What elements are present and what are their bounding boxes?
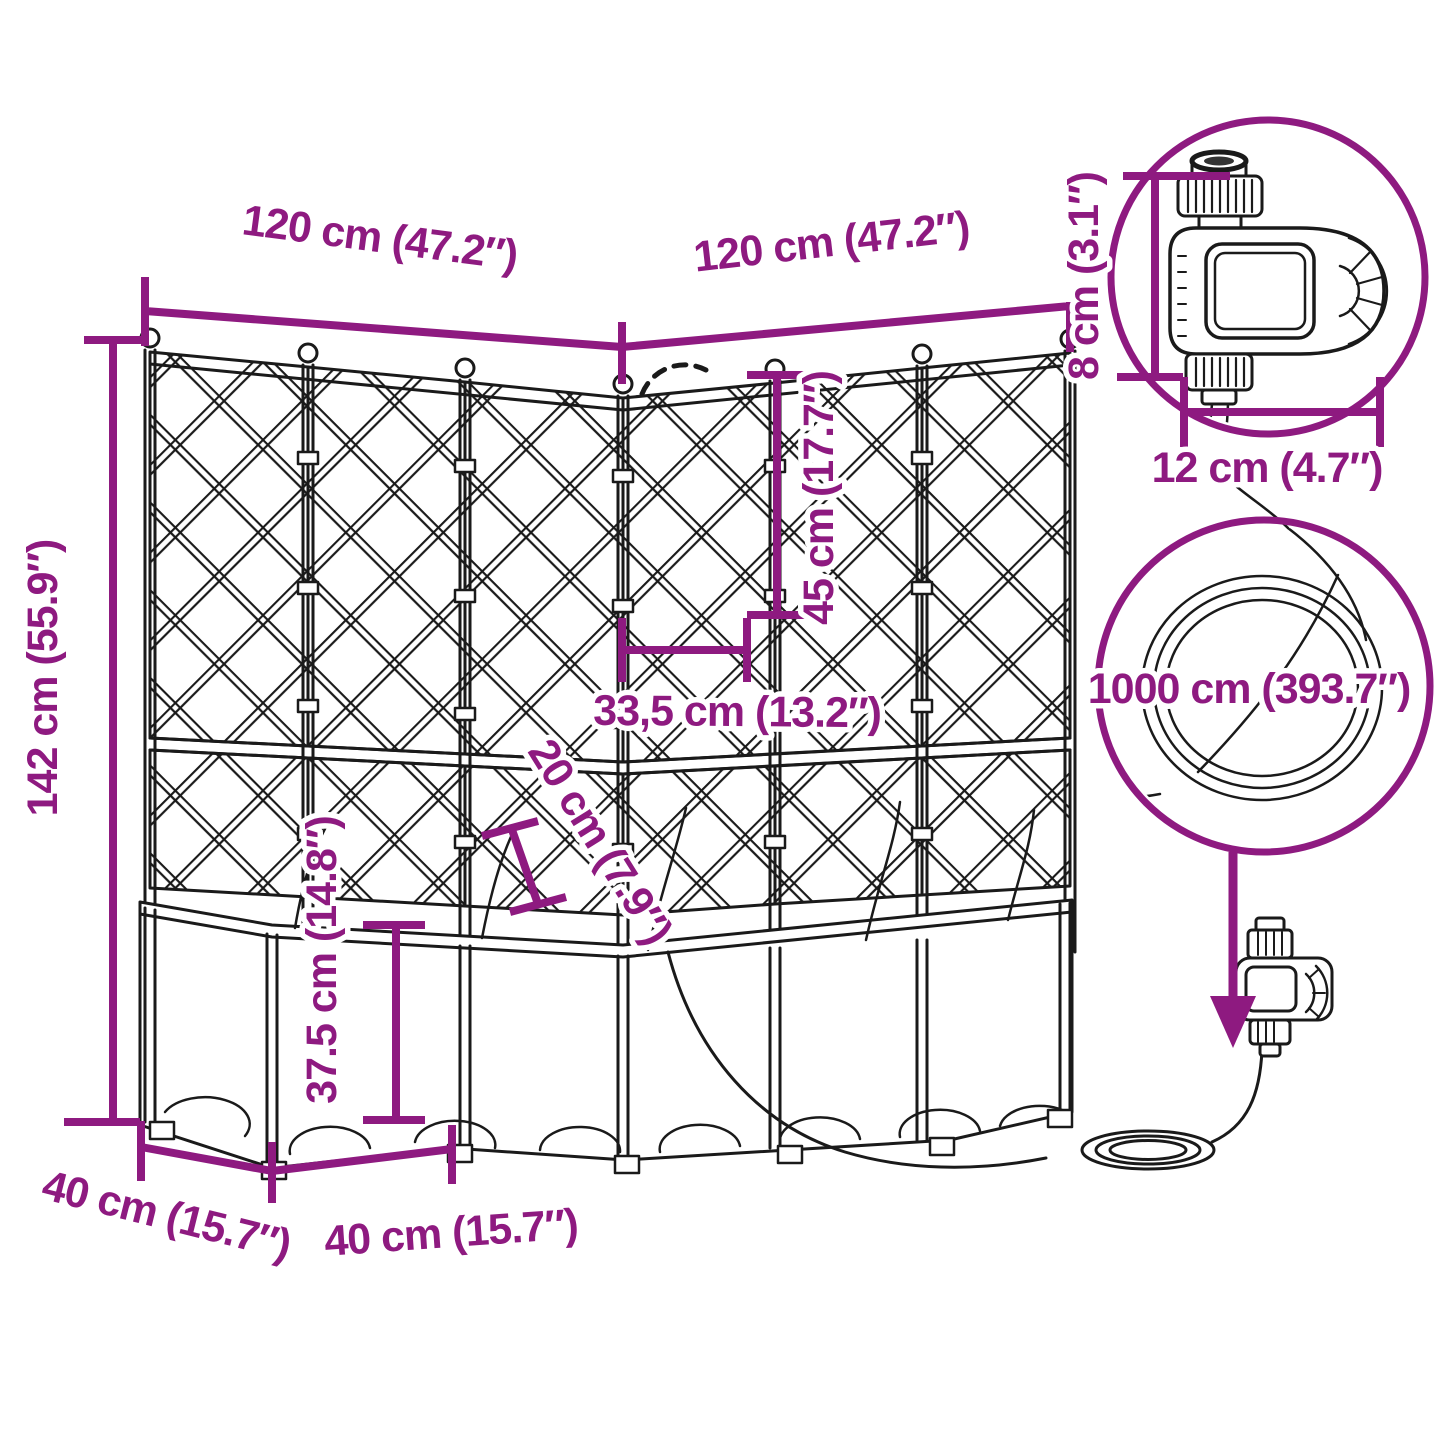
planter-boxes [140,900,1072,1179]
dim-label-40-left: 40 cm (15.7″) [37,1161,295,1269]
dim-label-375: 37.5 cm (14.8″) [298,816,346,1104]
dim-line-width-left [145,277,622,347]
dim-label-45: 45 cm (17.7″) [795,371,843,625]
product-dimension-diagram: 120 cm (47.2″) 120 cm (47.2″) 142 cm (55… [0,0,1445,1445]
hose-coil-small [1110,1141,1186,1160]
trellis-panel [150,352,308,746]
trellis-panel [775,758,922,904]
dim-line-width-right [622,302,1070,352]
trellis-panel [922,353,1070,746]
dim-label-timer-width: 12 cm (4.7″) [1152,444,1383,492]
dim-label-40-front: 40 cm (15.7″) [323,1200,580,1266]
trellis-panel [150,750,308,897]
trellis-panel [922,750,1070,895]
dim-label-hose-length: 1000 cm (393.7″) [1088,665,1411,713]
post-finial [456,359,474,377]
outdoor-timer-small [1236,918,1332,1056]
dim-line-total-height [64,340,143,1122]
post-finial [913,345,931,363]
post-finial [299,344,317,362]
dim-label-width-left: 120 cm (47.2″) [240,196,521,280]
dim-label-total-height: 142 cm (55.9″) [19,540,67,817]
hose-callout-art [1058,528,1382,800]
trellis-panel [308,367,465,754]
dim-label-width-right: 120 cm (47.2″) [691,203,971,282]
diagram-canvas: 120 cm (47.2″) 120 cm (47.2″) 142 cm (55… [0,0,1445,1445]
dim-label-timer-height: 8 cm (3.1″) [1060,172,1108,380]
dim-label-335: 33,5 cm (13.2″) [593,687,881,738]
